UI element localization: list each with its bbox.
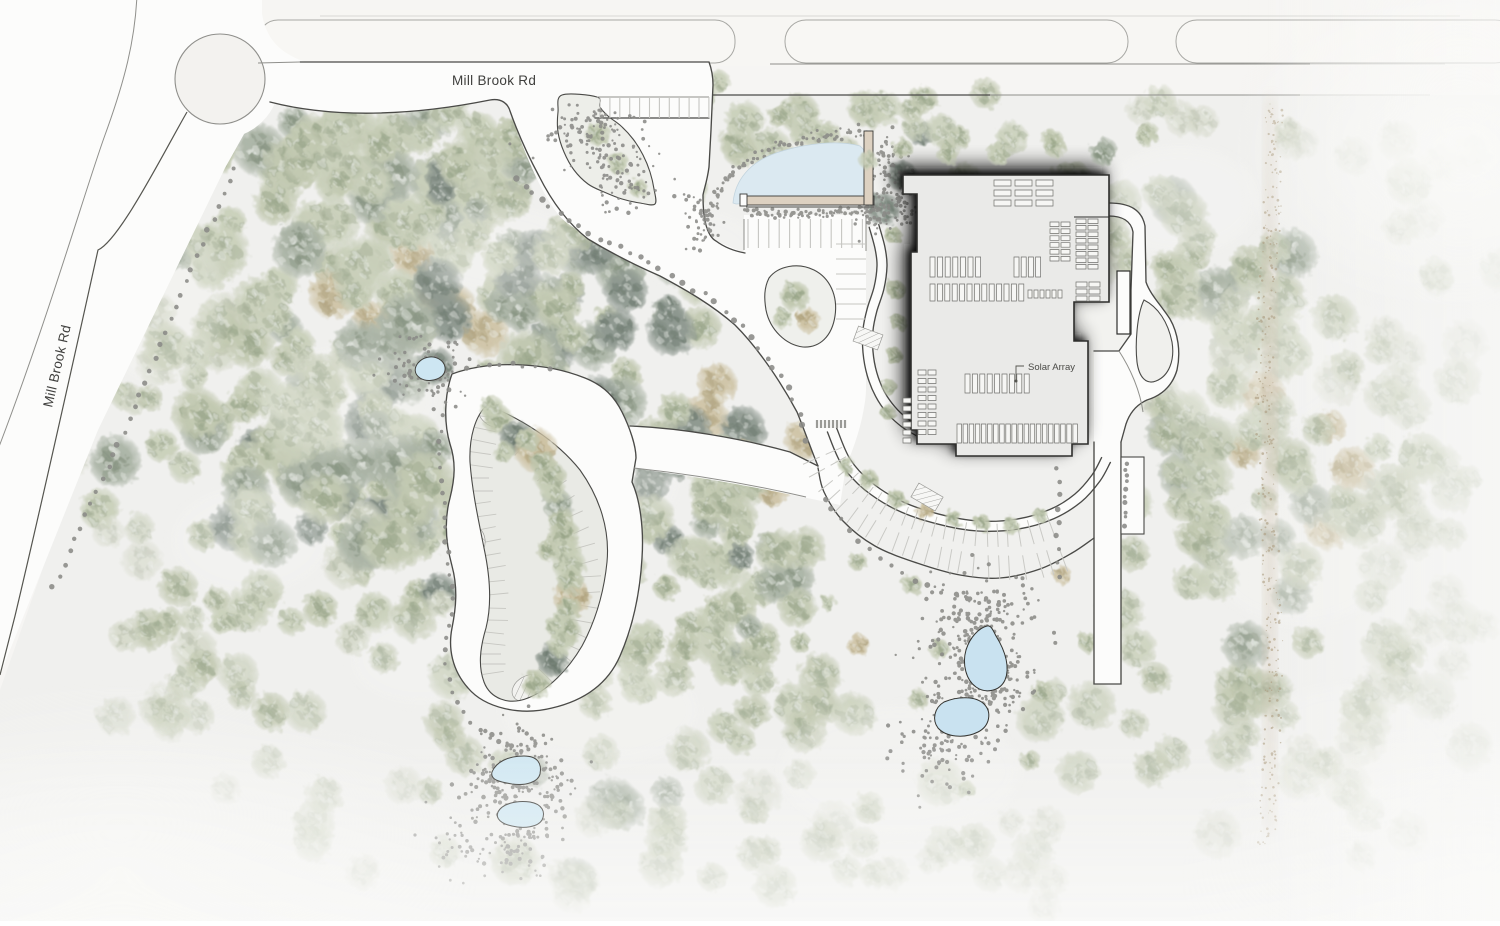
svg-text:Solar Array: Solar Array xyxy=(1028,362,1075,373)
svg-text:Mill Brook Rd: Mill Brook Rd xyxy=(452,73,536,88)
